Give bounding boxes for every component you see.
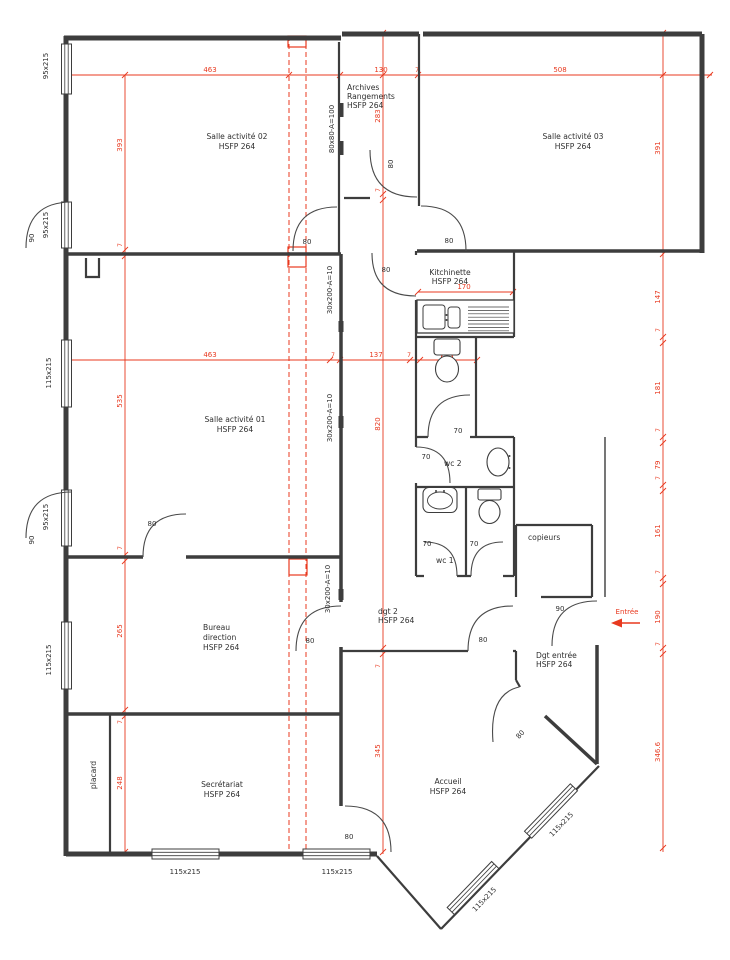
kitchen-sink [417, 300, 514, 333]
window [62, 44, 371, 859]
dim-label: 7 [655, 328, 662, 332]
toilet [434, 339, 460, 382]
door-arc [345, 806, 391, 852]
dim-label: 535 [116, 394, 124, 407]
hatch-panel-mark [339, 141, 344, 155]
dim-label: 393 [116, 138, 124, 151]
dim-label: 463 [203, 351, 216, 359]
floor-plan-page: 463 130 7 508 463 7 137 7 65 170 393 7 5… [0, 0, 730, 960]
labels-layer: Salle activité 02 HSFP 264 Salle activit… [28, 53, 604, 914]
dimension-labels: 463 130 7 508 463 7 137 7 65 170 393 7 5… [116, 66, 662, 790]
room-label: Dgt entrée [536, 651, 577, 660]
dim-label: 7 [117, 546, 124, 550]
column-marker [288, 247, 306, 267]
room-label: Salle activité 01 [204, 415, 265, 424]
door-width-label: 80 [382, 266, 391, 274]
dim-label: 7 [331, 352, 335, 359]
dim-label: 283 [374, 109, 382, 122]
room-label: direction [203, 633, 236, 642]
door-width-label: 80 [306, 637, 315, 645]
dim-label: 7 [655, 476, 662, 480]
door-width-label: 80 [148, 520, 157, 528]
door-arc [293, 207, 337, 251]
dim-label: 161 [654, 524, 662, 537]
window-size-label: 115x215 [45, 358, 53, 389]
room-label: wc 2 [444, 459, 462, 468]
window-size-label: 95x215 [42, 504, 50, 530]
panel-mark-label: 30x200-A=10 [326, 394, 334, 442]
entry-arrow-head [611, 619, 622, 628]
room-label: Accueil [434, 777, 461, 786]
dim-label: 79 [654, 461, 662, 470]
dim-label: 7 [655, 642, 662, 646]
room-label: HSFP 264 [432, 277, 469, 286]
room-label: wc 1 [436, 556, 454, 565]
room-label: Secrétariat [201, 780, 243, 789]
dim-label: 7 [407, 352, 411, 359]
door-arc [296, 606, 341, 651]
room-label: dgt 2 [378, 607, 398, 616]
dim-label: 7 [375, 188, 382, 192]
dim-label: 130 [374, 66, 387, 74]
dim-label: 391 [654, 141, 662, 154]
room-label: Salle activité 03 [542, 132, 603, 141]
dim-label: 508 [553, 66, 566, 74]
window-size-label: 115x215 [322, 868, 353, 876]
dim-label: 7 [117, 720, 124, 724]
entry-label: Entrée [616, 608, 639, 616]
axis-dashed-lines [289, 36, 306, 855]
room-label: HSFP 264 [204, 790, 241, 799]
dim-label: 248 [116, 776, 124, 789]
door-arc [421, 206, 466, 251]
door-width-label: 90 [556, 605, 565, 613]
room-label: Rangements [347, 92, 395, 101]
dim-label: 137 [369, 351, 382, 359]
dim-label: 345 [374, 744, 382, 757]
window-size-label: 95x215 [42, 53, 50, 79]
glazing-panel-mark [339, 589, 344, 600]
windows-layer [62, 44, 578, 914]
room-label: placard [89, 761, 98, 789]
door-width-label: 80 [515, 729, 527, 741]
door-width-label: 90 [28, 536, 36, 545]
room-label: Bureau [203, 623, 230, 632]
door-width-label: 80 [345, 833, 354, 841]
dimension-layer [65, 30, 713, 855]
room-label: copieurs [528, 533, 560, 542]
door-width-label: 80 [303, 238, 312, 246]
door-width-label: 80 [445, 237, 454, 245]
door-width-label: 70 [423, 540, 432, 548]
room-label: HSFP 264 [378, 616, 415, 625]
dim-label: 346.6 [654, 741, 662, 762]
dim-label: 7 [375, 664, 382, 668]
dim-label: 820 [374, 417, 382, 430]
dim-label: 147 [654, 290, 662, 303]
door-width-label: 80 [387, 160, 395, 169]
door-width-label: 80 [479, 636, 488, 644]
window-size-label: 115x215 [170, 868, 201, 876]
room-label: HSFP 264 [555, 142, 592, 151]
room-label: HSFP 264 [203, 643, 240, 652]
room-label: Kitchinette [429, 268, 471, 277]
dim-label: 463 [203, 66, 216, 74]
dim-label: 7 [655, 428, 662, 432]
washbasin [487, 448, 511, 476]
dimension-ticks [65, 30, 713, 855]
door-arc [428, 395, 470, 437]
room-label: HSFP 264 [219, 142, 256, 151]
sink [423, 488, 457, 513]
column-marker [289, 559, 307, 575]
window-size-label: 95x215 [42, 212, 50, 238]
window-size-label: 115x215 [45, 645, 53, 676]
door-arc [372, 253, 416, 296]
dim-label: 181 [654, 381, 662, 394]
glazing-panel-mark [339, 416, 344, 428]
room-label: Archives [347, 83, 379, 92]
door-width-label: 90 [28, 234, 36, 243]
door-width-label: 70 [422, 453, 431, 461]
door-width-label: 70 [470, 540, 479, 548]
dimension-lines [68, 33, 712, 854]
dim-label: 190 [654, 610, 662, 623]
glazing-panel-mark [339, 321, 344, 332]
panel-mark-label: 30x200-A=10 [326, 266, 334, 314]
toilet [478, 489, 501, 524]
dim-label: 7 [655, 570, 662, 574]
room-label: HSFP 264 [536, 660, 573, 669]
floor-plan-svg: 463 130 7 508 463 7 137 7 65 170 393 7 5… [0, 0, 730, 960]
panel-mark-label: 30x200-A=10 [324, 565, 332, 613]
door-arc [468, 606, 513, 651]
door-width-label: 70 [454, 427, 463, 435]
room-label: HSFP 264 [430, 787, 467, 796]
dim-label: 265 [116, 624, 124, 637]
room-label: HSFP 264 [347, 101, 384, 110]
hatch-panel-mark [339, 103, 344, 117]
main-interior-walls [66, 251, 702, 806]
room-label: HSFP 264 [217, 425, 254, 434]
dim-label: 7 [117, 243, 124, 247]
room-label: Salle activité 02 [206, 132, 267, 141]
panel-mark-label: 80x80-A=100 [328, 105, 336, 153]
